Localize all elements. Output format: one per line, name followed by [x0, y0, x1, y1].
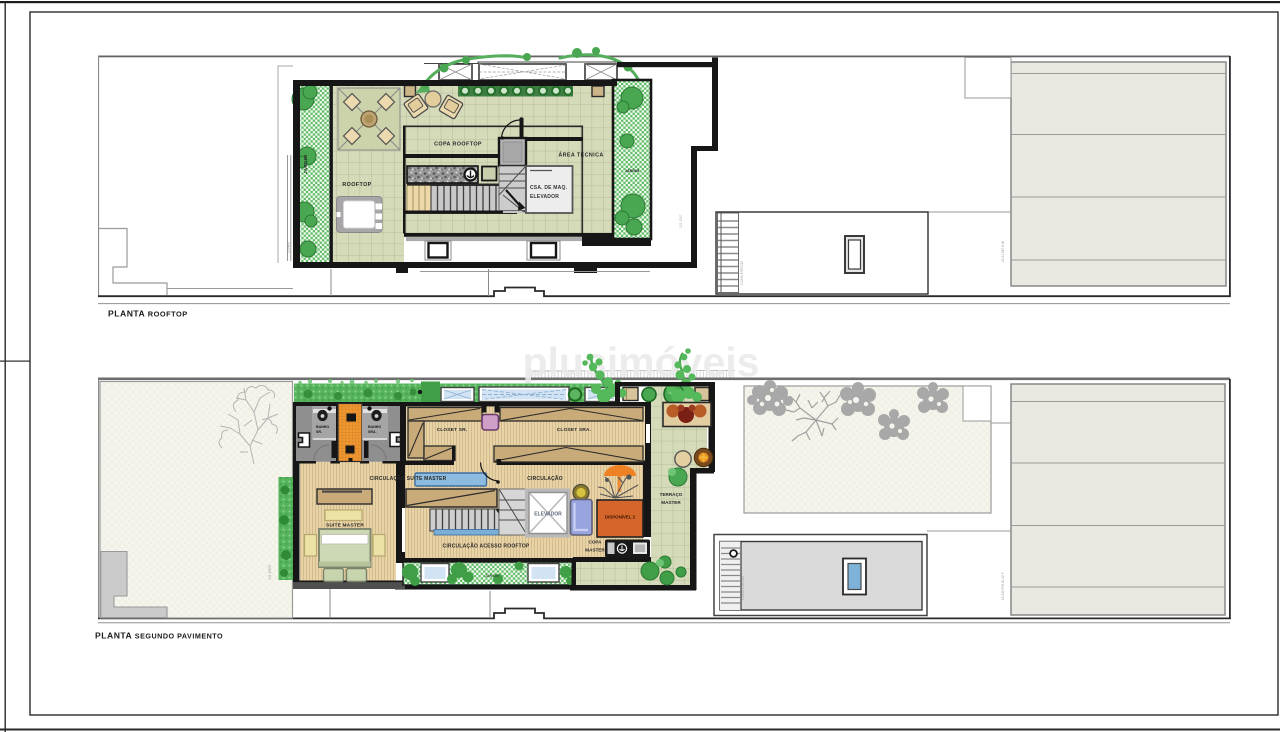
svg-text:DISPONÍVEL 2: DISPONÍVEL 2 — [605, 515, 636, 520]
svg-text:MASTER: MASTER — [661, 500, 681, 505]
svg-text:ÁREA TÉCNICA: ÁREA TÉCNICA — [558, 151, 603, 159]
svg-text:PLANTA ROOFTOP: PLANTA ROOFTOP — [108, 309, 188, 319]
svg-text:COPA: COPA — [589, 540, 603, 545]
svg-text:CSA. DE MAQ.: CSA. DE MAQ. — [530, 185, 568, 191]
svg-text:ELEVADOR: ELEVADOR — [534, 512, 562, 518]
svg-text:plusimóveis: plusimóveis — [523, 339, 760, 385]
svg-text:BANHO: BANHO — [368, 425, 381, 429]
svg-text:CIRCULAÇÃO ACESSO ROOFTOP: CIRCULAÇÃO ACESSO ROOFTOP — [443, 543, 530, 550]
svg-text:123 4567: 123 4567 — [679, 214, 683, 228]
svg-text:ROOFTOP: ROOFTOP — [342, 182, 371, 188]
svg-text:SRA.: SRA. — [368, 430, 377, 434]
svg-text:MASTER: MASTER — [585, 548, 605, 553]
svg-text:JARDIM: JARDIM — [625, 169, 640, 173]
svg-text:JARDIM: JARDIM — [303, 155, 308, 174]
svg-text:SR.: SR. — [316, 430, 322, 434]
svg-text:CLOSET SRA.: CLOSET SRA. — [557, 427, 591, 433]
svg-text:JARDIM: JARDIM — [485, 574, 500, 578]
svg-text:CLOSET SR.: CLOSET SR. — [437, 427, 468, 433]
svg-text:SUITE MASTER: SUITE MASTER — [326, 523, 364, 529]
svg-text:1.2345 6789 012: 1.2345 6789 012 — [741, 576, 745, 600]
svg-text:CIRCULAÇÃO SUITE MASTER: CIRCULAÇÃO SUITE MASTER — [370, 475, 447, 482]
svg-text:1.2345 6789 012: 1.2345 6789 012 — [740, 261, 744, 285]
svg-text:12.345 678.90 12 3: 12.345 678.90 12 3 — [1001, 572, 1005, 600]
svg-text:TERRAÇO: TERRAÇO — [660, 492, 683, 497]
svg-text:PLANTA SEGUNDO PAVIMENTO: PLANTA SEGUNDO PAVIMENTO — [95, 631, 223, 641]
svg-text:ELEVADOR: ELEVADOR — [530, 194, 559, 200]
svg-text:CIRCULAÇÃO: CIRCULAÇÃO — [527, 475, 563, 482]
svg-text:COPA ROOFTOP: COPA ROOFTOP — [434, 142, 482, 148]
svg-text:1234567: 1234567 — [287, 241, 291, 253]
svg-text:12.34 567.8 90: 12.34 567.8 90 — [1001, 241, 1005, 262]
svg-text:123 45678: 123 45678 — [268, 565, 272, 580]
svg-text:BANHO: BANHO — [316, 425, 329, 429]
